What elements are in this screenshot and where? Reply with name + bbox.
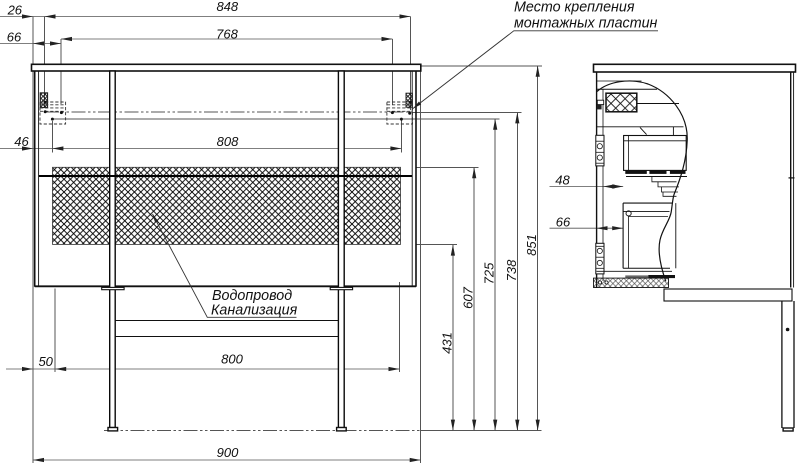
svg-text:808: 808 [217, 134, 239, 149]
svg-text:725: 725 [482, 262, 497, 284]
svg-text:монтажных пластин: монтажных пластин [514, 16, 658, 32]
svg-text:26: 26 [7, 3, 23, 18]
svg-text:848: 848 [216, 0, 238, 14]
svg-text:800: 800 [221, 352, 243, 367]
svg-text:431: 431 [439, 332, 454, 354]
svg-text:66: 66 [556, 215, 571, 230]
svg-text:738: 738 [504, 259, 519, 281]
svg-text:851: 851 [524, 234, 539, 256]
svg-text:Канализация: Канализация [211, 303, 298, 319]
svg-text:900: 900 [217, 445, 239, 460]
svg-text:48: 48 [555, 173, 570, 188]
svg-text:607: 607 [461, 286, 476, 308]
svg-text:Водопровод: Водопровод [212, 288, 292, 304]
svg-text:Место крепления: Место крепления [514, 0, 635, 16]
svg-text:66: 66 [7, 29, 22, 44]
svg-text:768: 768 [216, 27, 238, 42]
svg-text:50: 50 [38, 354, 53, 369]
svg-text:46: 46 [14, 134, 29, 149]
